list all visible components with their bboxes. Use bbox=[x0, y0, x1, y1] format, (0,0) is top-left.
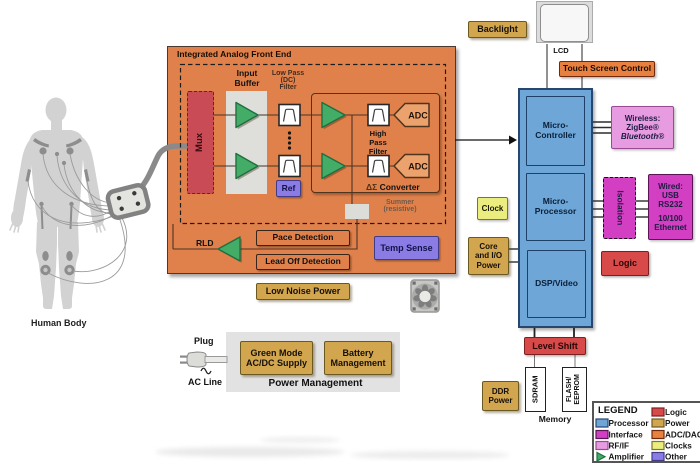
svg-text:ADC: ADC bbox=[408, 162, 428, 172]
svg-text:ADC: ADC bbox=[408, 111, 428, 121]
